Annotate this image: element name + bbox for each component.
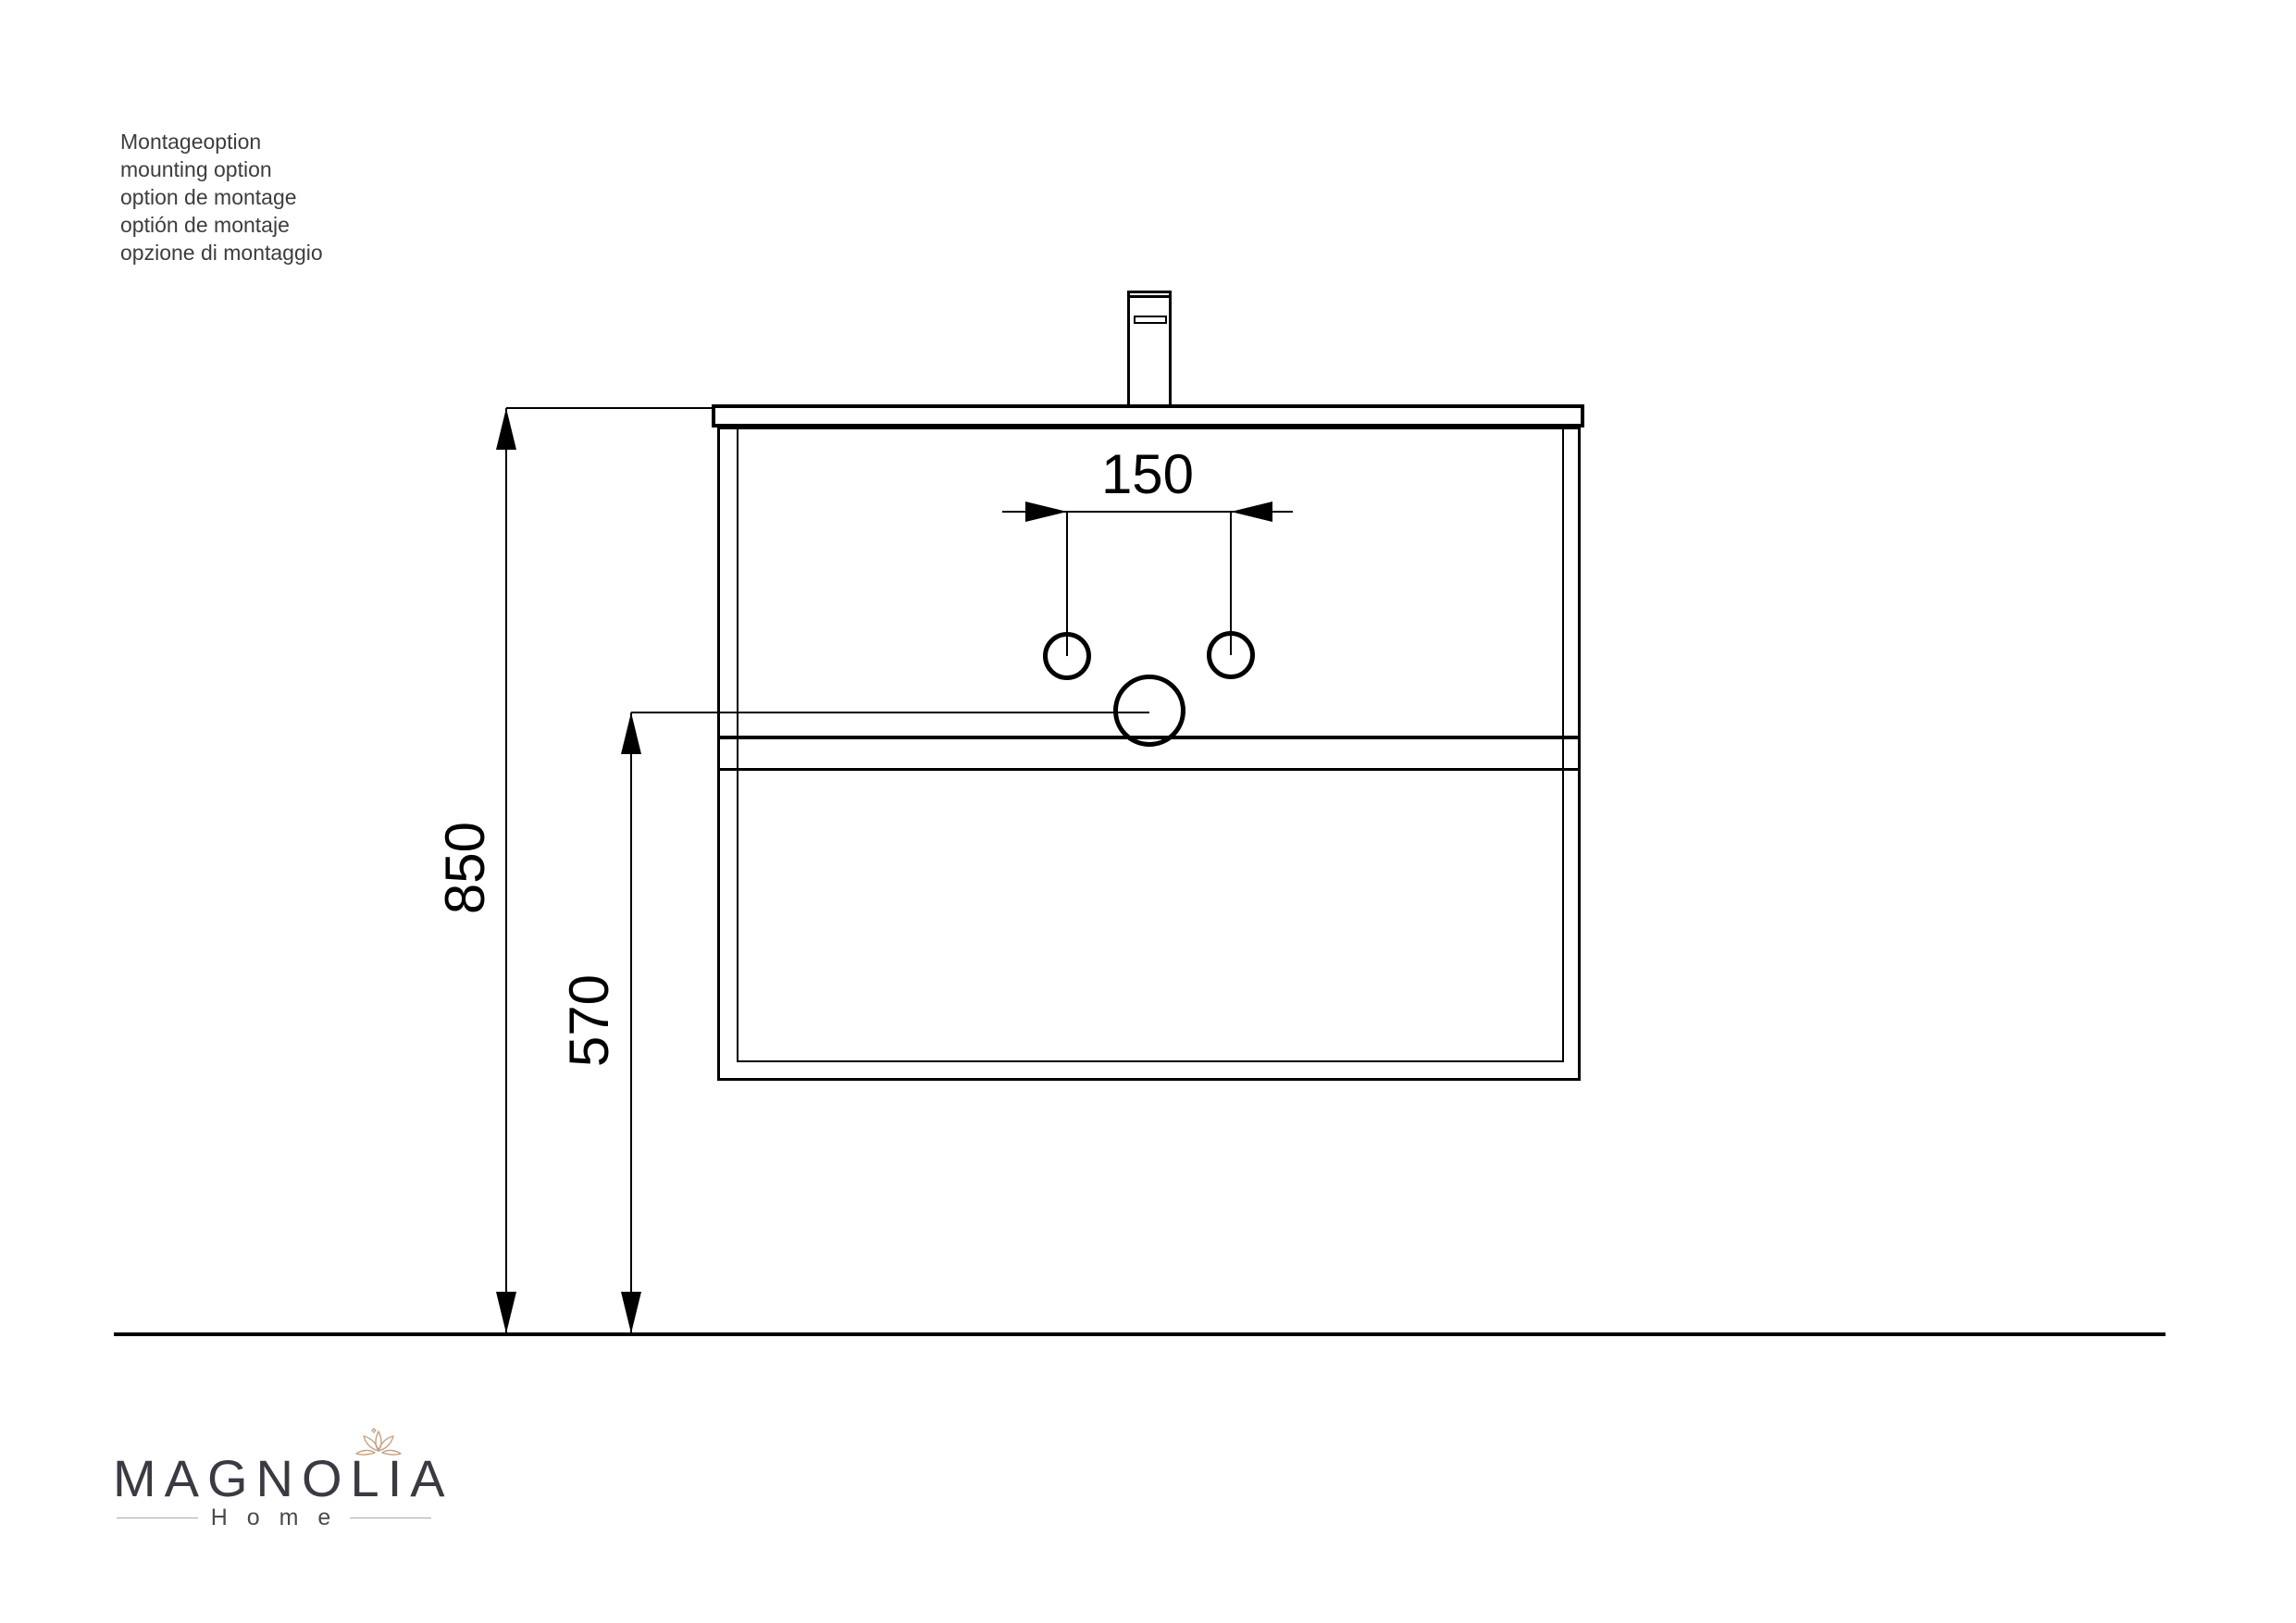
subtitle-rule-right — [350, 1518, 431, 1518]
dim-label-150: 150 — [1009, 447, 1286, 502]
note-block: Montageoption mounting option option de … — [120, 128, 323, 266]
dim-arrow-570-up-icon — [621, 712, 641, 754]
countertop — [712, 404, 1584, 427]
floor-line — [114, 1332, 2166, 1336]
faucet-handle — [1134, 316, 1167, 324]
dim-line-570 — [630, 712, 632, 1333]
extension-line-570-top — [631, 712, 1149, 713]
faucet — [1127, 291, 1172, 407]
brand-subtitle: H o m e — [198, 1505, 351, 1531]
dim-line-850 — [505, 408, 507, 1333]
brand-subtitle-row: H o m e — [117, 1505, 431, 1531]
dim-arrow-left-icon — [1025, 502, 1067, 522]
mounting-diagram-page: Montageoption mounting option option de … — [0, 0, 2296, 1623]
dim-arrow-850-up-icon — [496, 408, 516, 450]
dim-arrow-right-icon — [1231, 502, 1272, 522]
note-line-es: optión de montaje — [120, 211, 323, 239]
note-line-fr: option de montage — [120, 183, 323, 211]
extension-line-150-left — [1066, 512, 1068, 656]
brand-name: MAGNOLIA — [113, 1453, 453, 1505]
dim-label-850: 850 — [438, 775, 493, 960]
subtitle-rule-left — [117, 1518, 198, 1518]
note-line-de: Montageoption — [120, 128, 323, 155]
note-line-it: opzione di montaggio — [120, 239, 323, 266]
dim-arrow-850-down-icon — [496, 1292, 516, 1333]
note-line-en: mounting option — [120, 155, 323, 183]
dim-label-570: 570 — [562, 928, 617, 1113]
dim-arrow-570-down-icon — [621, 1292, 641, 1333]
drawer-divider-bottom — [717, 768, 1581, 771]
extension-line-150-right — [1230, 512, 1232, 655]
extension-line-850-top — [506, 407, 712, 409]
drain-hole — [1113, 675, 1185, 747]
faucet-cap-line — [1127, 295, 1172, 298]
